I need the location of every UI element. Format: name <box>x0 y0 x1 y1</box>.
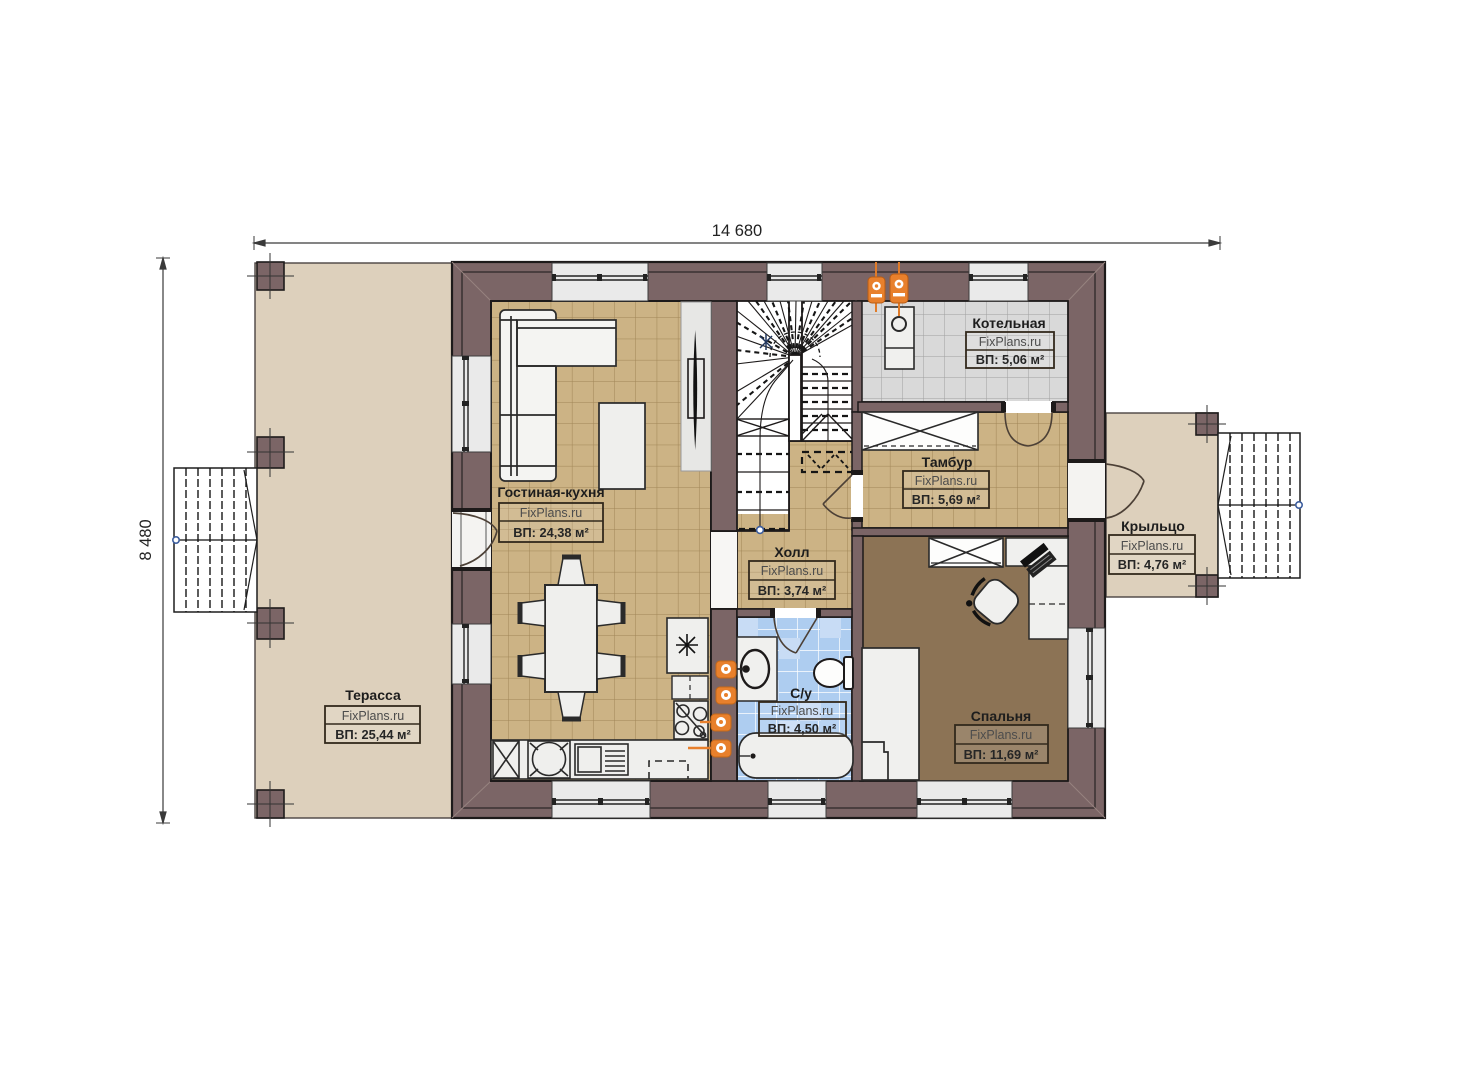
svg-text:Котельная: Котельная <box>972 315 1045 331</box>
svg-text:ВП: 24,38 м²: ВП: 24,38 м² <box>513 525 589 540</box>
svg-text:14 680: 14 680 <box>712 222 762 240</box>
svg-text:FixPlans.ru: FixPlans.ru <box>761 564 824 578</box>
svg-text:С/у: С/у <box>790 685 812 701</box>
svg-text:Спальня: Спальня <box>971 708 1031 724</box>
svg-text:FixPlans.ru: FixPlans.ru <box>915 474 978 488</box>
svg-text:ВП: 5,69 м²: ВП: 5,69 м² <box>912 492 980 507</box>
svg-text:Тамбур: Тамбур <box>922 454 973 470</box>
svg-text:ВП: 11,69 м²: ВП: 11,69 м² <box>964 747 1039 762</box>
svg-text:FixPlans.ru: FixPlans.ru <box>342 709 405 723</box>
svg-text:Гостиная-кухня: Гостиная-кухня <box>497 484 604 500</box>
svg-text:ВП: 3,74 м²: ВП: 3,74 м² <box>758 583 826 598</box>
svg-text:ВП: 5,06 м²: ВП: 5,06 м² <box>976 352 1044 367</box>
svg-text:ВП: 4,76 м²: ВП: 4,76 м² <box>1118 557 1186 572</box>
svg-text:FixPlans.ru: FixPlans.ru <box>979 335 1042 349</box>
svg-text:FixPlans.ru: FixPlans.ru <box>520 506 583 520</box>
svg-text:Крыльцо: Крыльцо <box>1121 518 1185 534</box>
svg-text:ВП: 25,44 м²: ВП: 25,44 м² <box>335 727 411 742</box>
svg-text:Холл: Холл <box>774 544 809 560</box>
svg-text:ВП: 4,50 м²: ВП: 4,50 м² <box>768 721 836 736</box>
svg-text:FixPlans.ru: FixPlans.ru <box>970 728 1033 742</box>
svg-text:FixPlans.ru: FixPlans.ru <box>1121 539 1184 553</box>
svg-text:FixPlans.ru: FixPlans.ru <box>771 704 834 718</box>
svg-text:8 480: 8 480 <box>137 519 155 560</box>
svg-text:Терасса: Терасса <box>345 687 401 703</box>
